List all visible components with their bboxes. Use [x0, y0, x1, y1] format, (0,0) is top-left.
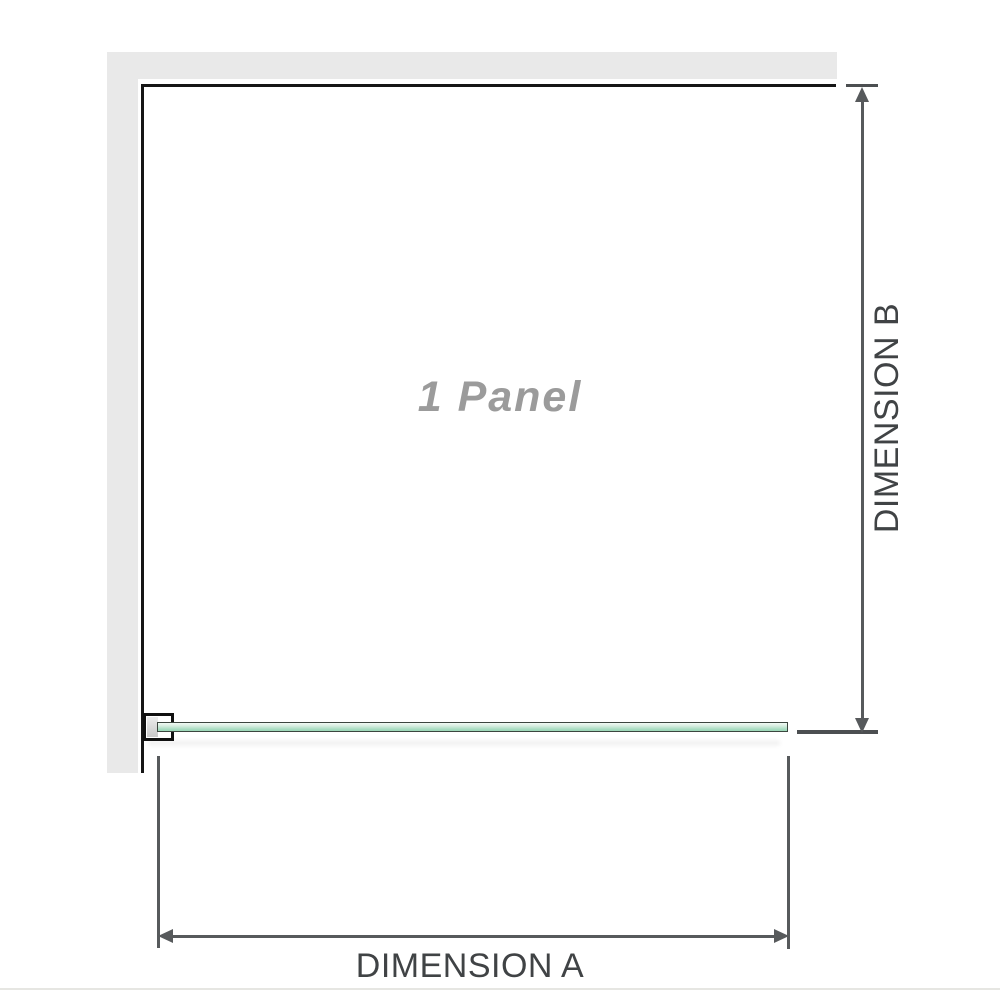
shower-panel-diagram: 1 Panel DIMENSION B DIMENSION A [0, 0, 1000, 1000]
dimension-b-label: DIMENSION B [869, 268, 905, 568]
glass-shadow [148, 741, 780, 745]
panel-count-label: 1 Panel [150, 371, 850, 423]
bottom-divider [0, 988, 1000, 990]
arrow-right-icon [774, 929, 789, 943]
arrow-up-icon [855, 87, 869, 102]
dimension-a-label: DIMENSION A [270, 944, 670, 988]
arrow-left-icon [158, 929, 173, 943]
glass-panel [157, 722, 788, 732]
wall-left-bar [107, 52, 138, 773]
dimension-a-line [170, 935, 776, 938]
dimension-a-extension-right [787, 756, 790, 949]
wall-inner-edge-top [141, 84, 836, 87]
dimension-a-extension-left [157, 756, 160, 948]
dimension-b-line [861, 100, 864, 720]
arrow-down-icon [855, 718, 869, 733]
wall-inner-edge-left [141, 84, 144, 773]
wall-top-bar [107, 52, 837, 79]
